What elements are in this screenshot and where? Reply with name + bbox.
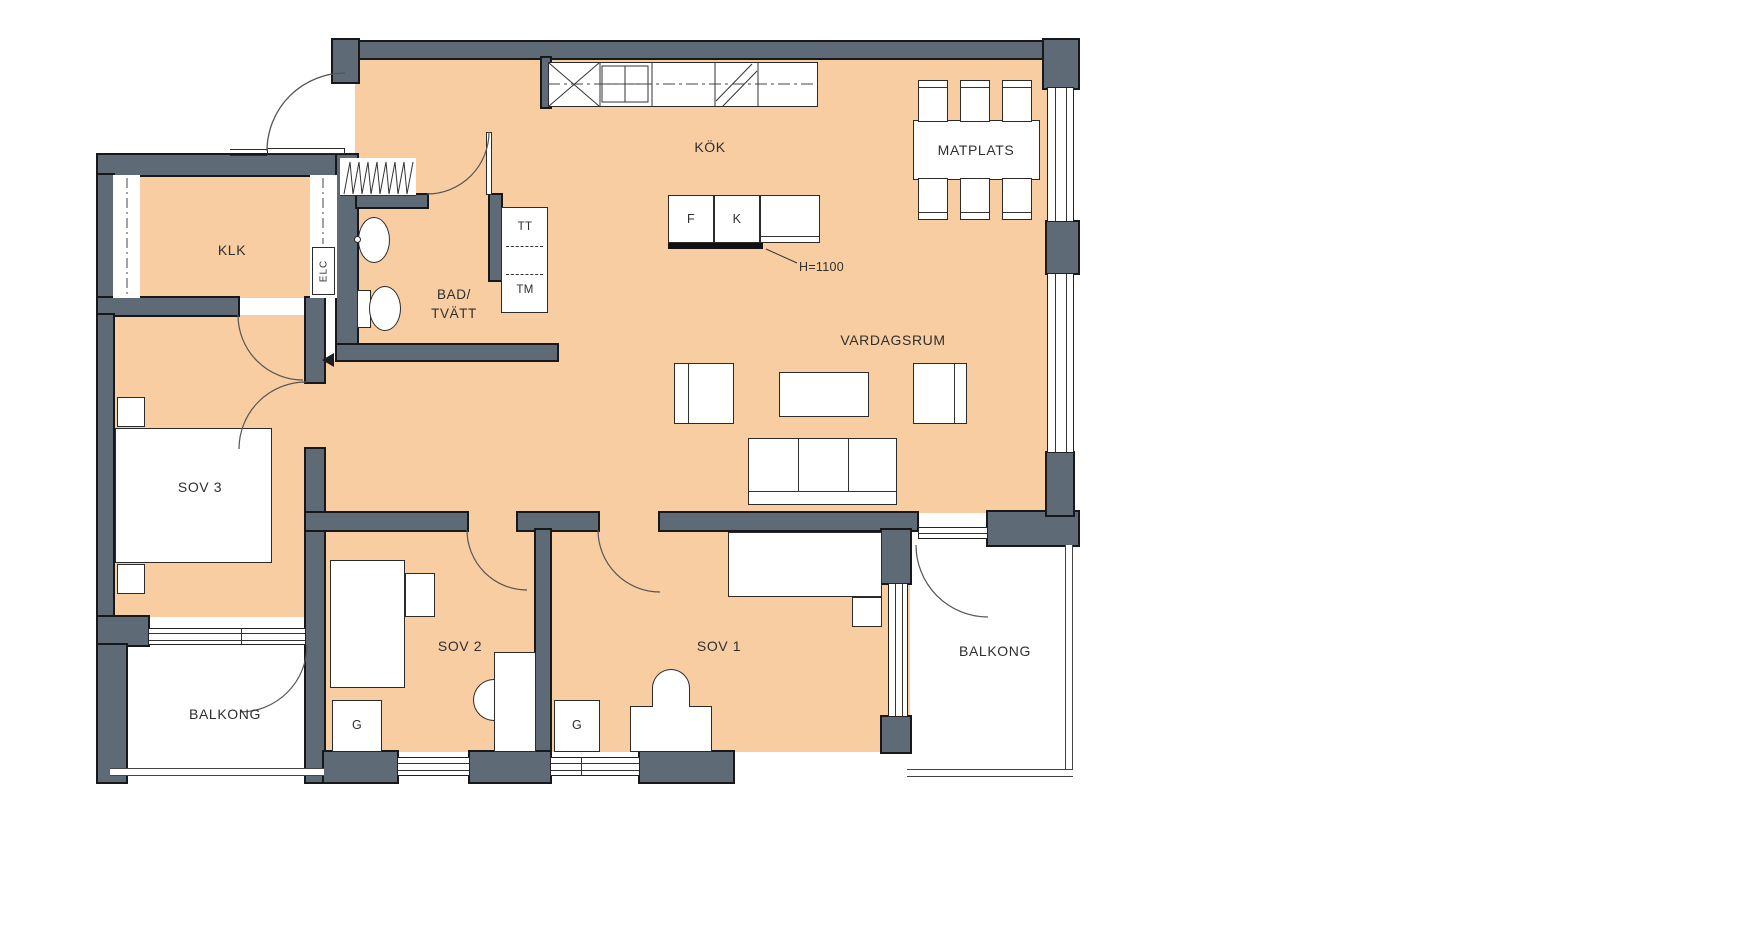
sink-tap-icon xyxy=(354,236,361,243)
wall-sov2-north xyxy=(306,513,467,530)
chair-back xyxy=(1003,212,1031,213)
coat-rack xyxy=(340,158,416,196)
wall-right-lower xyxy=(1047,453,1073,515)
armchair-left xyxy=(674,363,734,424)
wall-divider-sov1-sov2 xyxy=(536,530,550,752)
dining-chair xyxy=(918,80,948,122)
railing-balcony-left-bottom xyxy=(110,768,324,776)
appliance-divider xyxy=(506,274,543,275)
wall-south-b xyxy=(660,513,917,530)
window-mullion xyxy=(902,584,903,716)
room-label-bad-line2: TVÄTT xyxy=(431,304,477,323)
room-label-balkong-left: BALKONG xyxy=(189,706,261,722)
label-el-cabinet: ELC xyxy=(319,260,330,282)
wardrobe-label-g-sov1: G xyxy=(572,718,582,732)
balcony-left-door-arc xyxy=(240,645,307,712)
sofa-back-line xyxy=(749,491,896,492)
bed-sov2 xyxy=(330,560,405,688)
room-label-balkong-right: BALKONG xyxy=(959,643,1031,659)
sofa xyxy=(748,438,897,505)
wall-bottom-b xyxy=(470,752,550,782)
room-label-klk: KLK xyxy=(218,242,246,258)
window-mullion xyxy=(551,770,639,771)
window-mullion xyxy=(398,763,469,764)
room-label-bad-tvatt: BAD/ TVÄTT xyxy=(431,285,477,323)
nightstand xyxy=(852,597,882,627)
armchair-back xyxy=(688,364,689,423)
room-label-matplats: MATPLATS xyxy=(938,142,1015,158)
wall-sov3-balcony-pier xyxy=(98,617,148,645)
room-label-kok: KÖK xyxy=(694,139,725,155)
wall-bath-north xyxy=(357,195,427,207)
floor-corridor xyxy=(318,360,366,513)
window-mullion xyxy=(1066,274,1067,452)
wall-sov1-east-b xyxy=(882,717,910,752)
chair-sov1 xyxy=(652,669,690,707)
dining-chair xyxy=(960,178,990,220)
armchair-right xyxy=(913,363,967,424)
wall-klk-west xyxy=(98,175,113,298)
balcony-door-jamb xyxy=(241,629,242,644)
dining-chair xyxy=(1002,80,1032,122)
annotation-counter-height: H=1100 xyxy=(799,260,844,274)
nightstand xyxy=(405,573,435,617)
chair-back xyxy=(919,212,947,213)
window-sov1-balcony xyxy=(888,583,908,717)
railing-balcony-right-side xyxy=(1065,545,1073,775)
room-label-bad-line1: BAD/ xyxy=(431,285,477,304)
threshold-line xyxy=(919,533,987,534)
counter-edge-line xyxy=(761,236,819,237)
window-east-lower xyxy=(1047,273,1074,453)
window-mullion xyxy=(398,770,469,771)
wall-sov3-west xyxy=(98,315,113,617)
wall-bottom-a xyxy=(324,752,397,782)
room-label-sov2: SOV 2 xyxy=(438,638,482,654)
wall-bottom-c xyxy=(640,752,733,782)
chair-back xyxy=(961,212,989,213)
klk-shelf-strip-left xyxy=(113,175,140,298)
wall-klk-south xyxy=(98,298,238,315)
room-label-vardagsrum: VARDAGSRUM xyxy=(840,332,945,348)
entry-landing-line xyxy=(230,149,267,156)
desk-sov1 xyxy=(630,706,712,752)
room-label-sov1: SOV 1 xyxy=(697,638,741,654)
threshold-balcony-right-door xyxy=(918,527,988,539)
sofa-seat-divider xyxy=(798,439,799,491)
room-label-sov3: SOV 3 xyxy=(178,479,222,495)
bed-sov1 xyxy=(728,532,882,597)
wall-top xyxy=(337,42,1062,58)
window-center-tick xyxy=(581,758,582,775)
balcony-right-door-arc xyxy=(916,545,988,617)
nightstand xyxy=(117,564,145,594)
wall-bath-south xyxy=(337,345,557,360)
wall-south-a xyxy=(518,513,598,530)
floor-plan: KÖK MATPLATS VARDAGSRUM KLK BAD/ TVÄTT S… xyxy=(0,0,1742,926)
bathroom-sink xyxy=(358,217,390,263)
entry-door-arc xyxy=(267,73,345,151)
dining-chair xyxy=(918,178,948,220)
toilet-bowl xyxy=(369,286,401,331)
wall-corner-topright xyxy=(1044,40,1078,88)
bed-sov3 xyxy=(115,428,272,563)
railing-balcony-right-bottom xyxy=(907,769,1073,777)
island-counter-extension xyxy=(760,195,820,243)
desk-sov2 xyxy=(494,652,536,752)
nightstand xyxy=(117,397,145,427)
window-mullion xyxy=(1055,274,1056,452)
appliance-label-freezer: F xyxy=(687,212,695,226)
wall-sov1-east-a xyxy=(882,530,910,583)
dining-chair xyxy=(1002,178,1032,220)
entry-door-leaf xyxy=(267,148,345,154)
window-mullion xyxy=(149,640,305,641)
wall-balcony-left-west xyxy=(98,645,126,782)
wall-sov2-west xyxy=(306,530,324,782)
window-mullion xyxy=(1055,88,1056,221)
window-sov3-balcony xyxy=(148,628,306,645)
wall-bath-stub xyxy=(490,195,501,280)
sofa-seat-divider xyxy=(848,439,849,491)
kitchen-counter xyxy=(548,62,818,107)
window-sov1-south xyxy=(550,757,640,776)
appliance-divider xyxy=(506,246,543,247)
chair-back xyxy=(961,87,989,88)
coffee-table xyxy=(779,372,869,417)
wall-corridor-a xyxy=(306,298,324,382)
chair-back xyxy=(919,87,947,88)
bathroom-door-leaf xyxy=(486,132,492,195)
appliance-label-fridge: K xyxy=(733,212,742,226)
window-mullion xyxy=(551,763,639,764)
armchair-back xyxy=(954,364,955,423)
wall-corner-topleft xyxy=(333,40,358,82)
wall-klk-north xyxy=(98,155,357,175)
window-mullion xyxy=(149,633,305,634)
appliance-label-tt: TT xyxy=(518,221,533,233)
window-sov2-south xyxy=(397,757,470,776)
wall-right-pier xyxy=(1047,222,1078,273)
wall-south-block-se xyxy=(988,512,1078,545)
chair-back xyxy=(1003,87,1031,88)
wardrobe-label-g-sov2: G xyxy=(352,718,362,732)
dining-chair xyxy=(960,80,990,122)
island-counter-front xyxy=(668,243,763,249)
appliance-label-tm: TM xyxy=(516,284,533,296)
window-mullion xyxy=(1066,88,1067,221)
window-east-upper xyxy=(1047,87,1074,222)
window-mullion xyxy=(895,584,896,716)
